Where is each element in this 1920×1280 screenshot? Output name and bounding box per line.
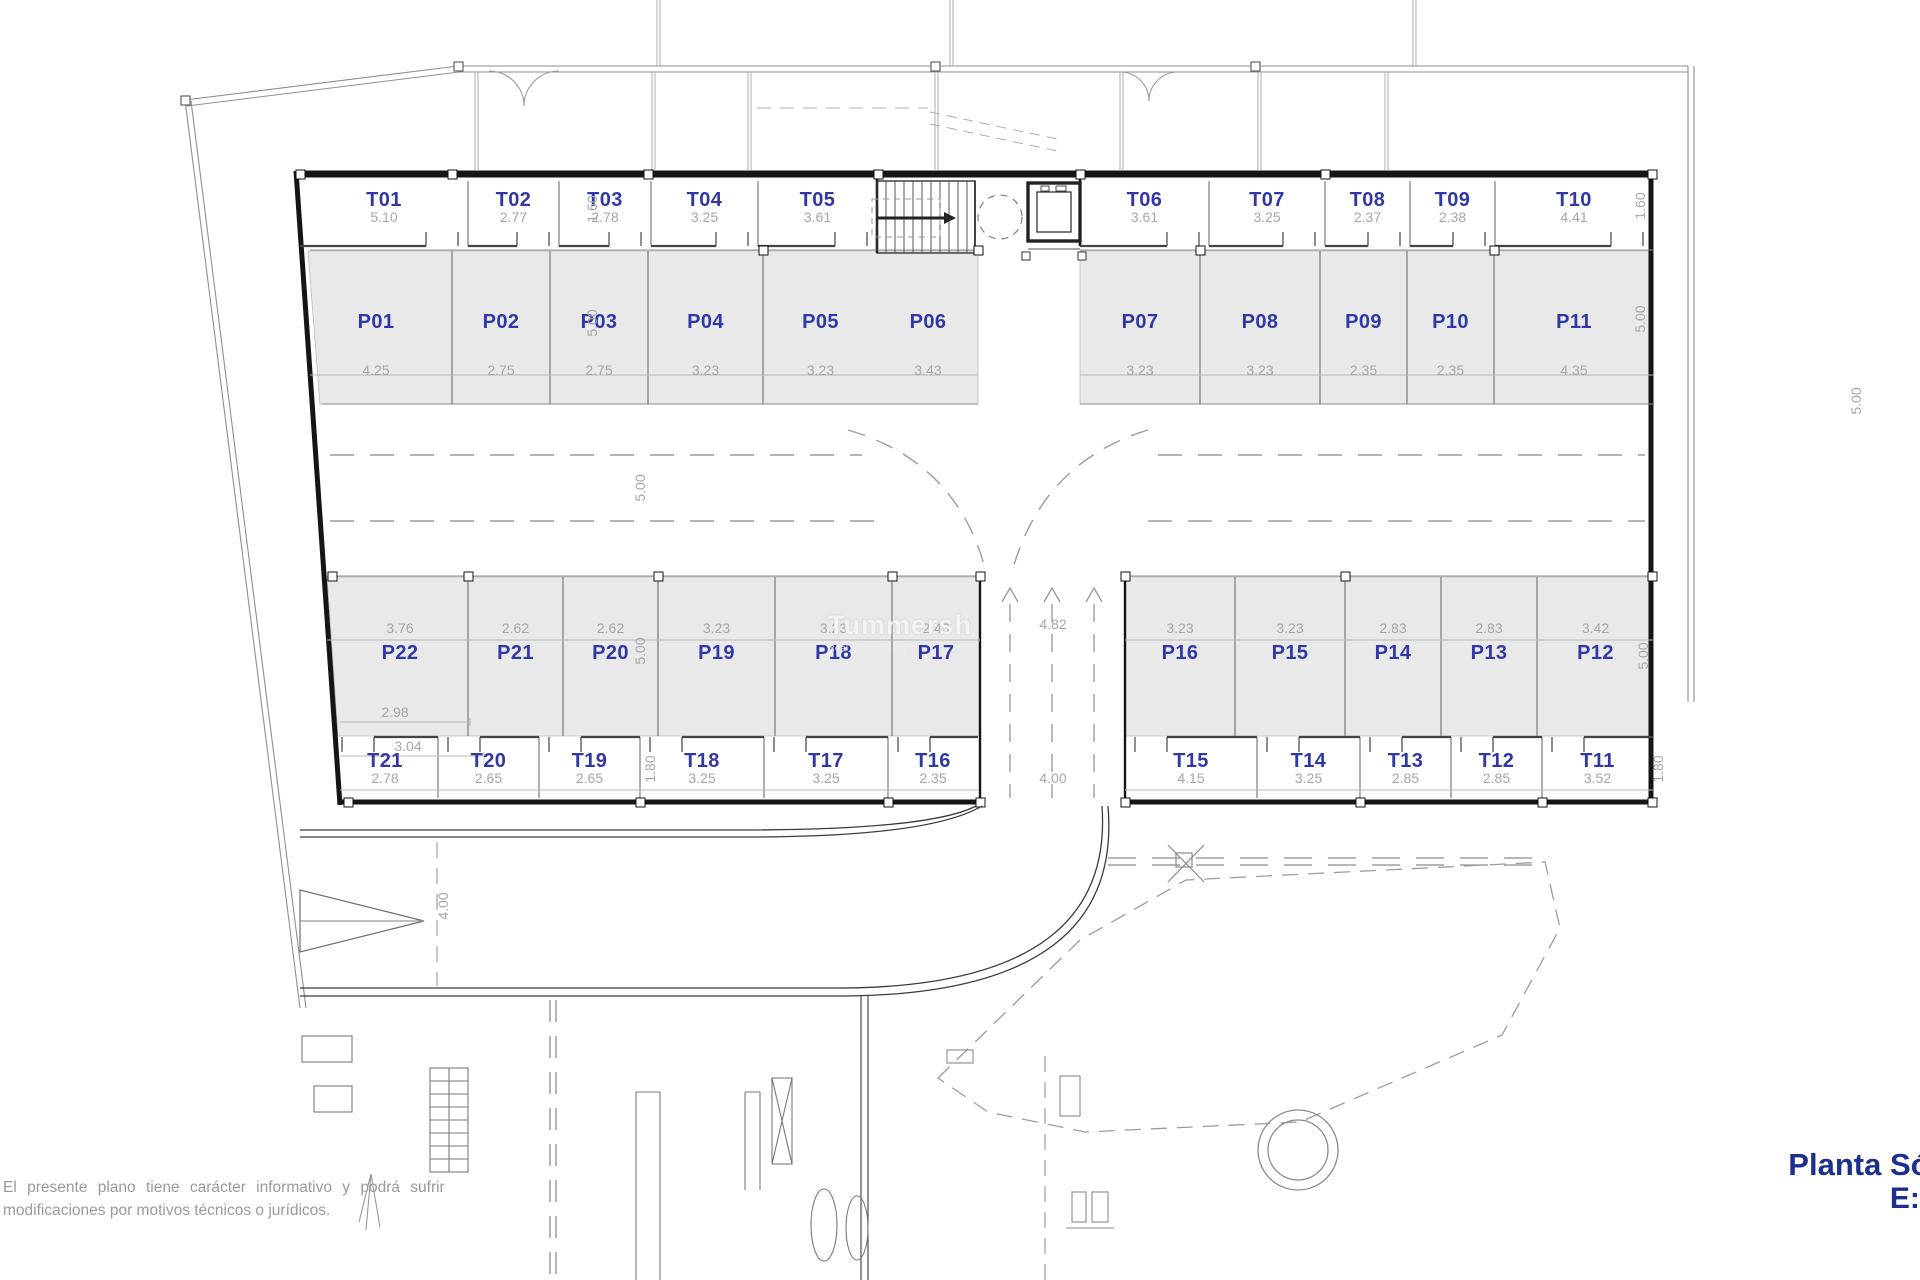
storage-room: T015.10 — [300, 190, 468, 246]
dim-storage-depth-top: 1.60 — [584, 187, 600, 231]
parking-space: P083.23 — [1200, 252, 1320, 378]
storage-room: T104.41 — [1495, 190, 1653, 246]
storage-room: T073.25 — [1209, 190, 1325, 246]
parking-space: 3.76P22 — [332, 577, 468, 663]
storage-room: T092.38 — [1410, 190, 1495, 246]
storage-room: T022.77 — [468, 190, 559, 246]
dim-aisle-width-left: 5.00 — [632, 466, 648, 510]
east-boundary-dashed — [1108, 858, 1545, 865]
column-void-circle — [978, 195, 1022, 239]
dim-bay-depth-top-left: 5.00 — [584, 301, 600, 345]
parking-space: P073.23 — [1080, 252, 1200, 378]
floor-plan-page: { "plan": { "title": { "line1": "Planta … — [0, 0, 1920, 1280]
aisle-lane-markings — [330, 430, 1645, 572]
parking-space: P102.35 — [1407, 252, 1494, 378]
storage-room: T082.37 — [1325, 190, 1410, 246]
dim-p22-inner: 2.98 — [355, 704, 435, 720]
title-block: Planta Sótano E:1/150 — [1735, 1148, 1920, 1216]
storage-room: T032.78 — [559, 190, 651, 246]
dim-bay-depth-bottom-left: 5.00 — [632, 629, 648, 673]
storage-room: T173.25 — [764, 751, 888, 786]
storage-room: T053.61 — [758, 190, 877, 246]
storage-room: T063.61 — [1080, 190, 1209, 246]
storage-room: T143.25 — [1257, 751, 1360, 786]
dim-storage-depth-bottom-left: 1.80 — [642, 747, 658, 791]
parasol-icon — [1168, 845, 1204, 882]
parking-space: P014.25 — [300, 252, 452, 378]
parking-space: P114.35 — [1494, 252, 1654, 378]
storage-room: T122.85 — [1451, 751, 1542, 786]
storage-room: T043.25 — [651, 190, 758, 246]
dim-storage-depth-bottom-right: 1.80 — [1650, 747, 1666, 791]
storage-room: T113.52 — [1542, 751, 1653, 786]
elevator-icon — [1022, 183, 1086, 260]
storage-room: T192.65 — [539, 751, 640, 786]
disclaimer-note: El presente plano tiene carácter informa… — [3, 1176, 481, 1222]
storage-room: T162.35 — [888, 751, 978, 786]
lower-left-structures — [302, 1000, 868, 1280]
pool-outline — [938, 862, 1560, 1132]
storage-room: T132.85 — [1360, 751, 1451, 786]
upper-floor-lines — [475, 0, 1416, 170]
plan-scale: E:1/150 — [1735, 1182, 1920, 1216]
parking-space: 3.23P19 — [658, 577, 775, 663]
dim-bay-depth-bottom-right: 5.00 — [1635, 634, 1651, 678]
dim-storage-depth-top-right: 1.60 — [1632, 184, 1648, 228]
stairs-icon — [872, 181, 975, 253]
dim-p22-outer: 3.04 — [368, 738, 448, 754]
parking-space: 2.62P21 — [468, 577, 563, 663]
entry-door-arc-icon — [489, 71, 1178, 106]
dim-bay-depth-top-right: 5.00 — [1632, 297, 1648, 341]
parking-space: 2.83P14 — [1345, 577, 1441, 663]
parking-space: 2.83P13 — [1441, 577, 1537, 663]
parking-space: P022.75 — [452, 252, 550, 378]
spa-circles-icon — [1258, 1110, 1338, 1190]
storage-room: T202.65 — [438, 751, 539, 786]
watermark-brand: Tummersh — [828, 610, 1058, 641]
storage-room: T154.15 — [1125, 751, 1257, 786]
watermark: Tummersh Real Estate - Inm — [828, 610, 1058, 653]
storage-room: T212.78 — [332, 751, 438, 786]
dim-aisle-width-right: 5.00 — [1848, 379, 1864, 423]
parking-space: P063.43 — [878, 252, 978, 378]
parking-space: 3.23P15 — [1235, 577, 1345, 663]
parking-space: P053.23 — [763, 252, 878, 378]
garden-furniture-icons — [947, 1050, 1114, 1228]
dim-ramp-width: 4.00 — [435, 884, 451, 928]
storage-room: T183.25 — [640, 751, 764, 786]
dim-lane-bottom: 4.00 — [1008, 770, 1098, 786]
ramp-arrow — [300, 890, 424, 952]
parking-space: 3.23P16 — [1125, 577, 1235, 663]
plan-title: Planta Sótano — [1735, 1148, 1920, 1182]
watermark-subtitle: Real Estate - Inm — [828, 643, 1058, 653]
parking-space: P092.35 — [1320, 252, 1407, 378]
parking-space: P043.23 — [648, 252, 763, 378]
